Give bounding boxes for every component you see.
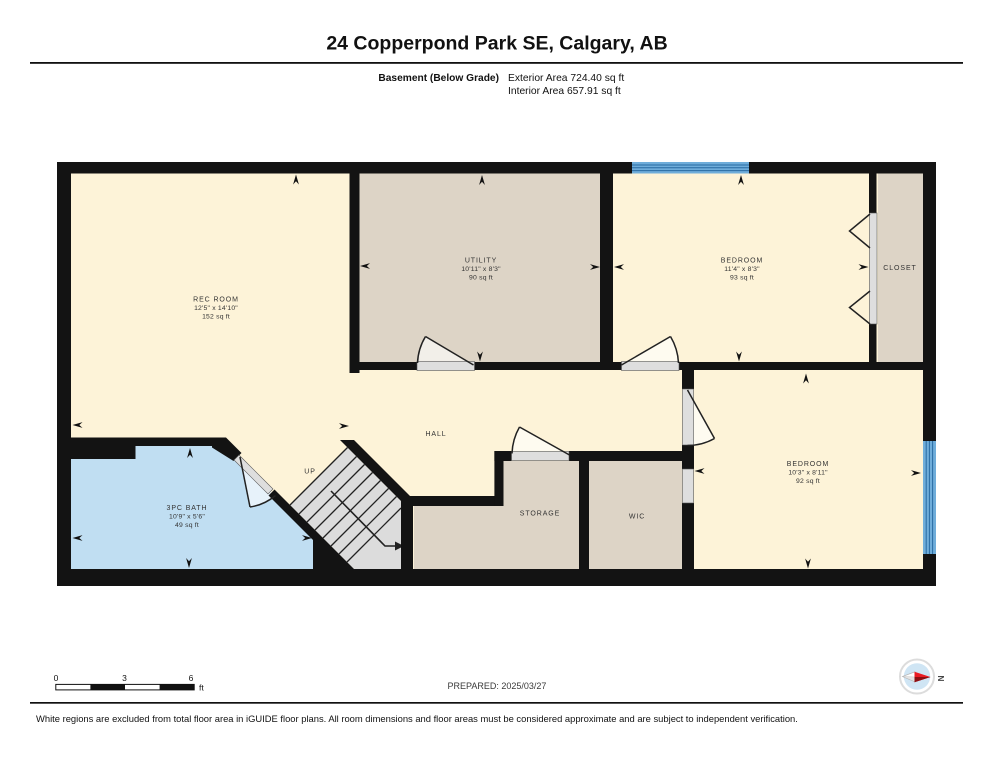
svg-text:Interior Area 657.91 sq ft: Interior Area 657.91 sq ft <box>508 86 621 97</box>
svg-text:UTILITY: UTILITY <box>465 258 497 265</box>
svg-text:10'11" x 8'3": 10'11" x 8'3" <box>461 266 501 273</box>
svg-text:PREPARED: 2025/03/27: PREPARED: 2025/03/27 <box>448 681 547 691</box>
svg-text:49 sq ft: 49 sq ft <box>175 522 199 529</box>
svg-text:ft: ft <box>199 683 204 693</box>
svg-text:HALL: HALL <box>425 431 446 438</box>
svg-text:92 sq ft: 92 sq ft <box>796 478 820 485</box>
svg-text:WIC: WIC <box>629 514 645 521</box>
svg-text:CLOSET: CLOSET <box>883 265 916 272</box>
svg-text:10'3" x 8'11": 10'3" x 8'11" <box>788 470 828 477</box>
svg-text:6: 6 <box>189 673 194 683</box>
svg-text:STORAGE: STORAGE <box>520 511 560 518</box>
svg-text:11'4" x 8'3": 11'4" x 8'3" <box>724 266 760 273</box>
svg-text:REC ROOM: REC ROOM <box>193 297 239 304</box>
svg-text:152 sq ft: 152 sq ft <box>202 314 230 321</box>
svg-text:N: N <box>936 676 945 682</box>
svg-text:White regions are excluded fro: White regions are excluded from total fl… <box>36 713 798 724</box>
svg-text:3PC BATH: 3PC BATH <box>167 505 208 512</box>
svg-text:3: 3 <box>122 673 127 683</box>
svg-text:12'5" x 14'10": 12'5" x 14'10" <box>194 305 238 312</box>
svg-text:BEDROOM: BEDROOM <box>787 461 829 468</box>
svg-text:Basement (Below Grade): Basement (Below Grade) <box>378 73 499 84</box>
svg-text:24 Copperpond Park SE, Calgary: 24 Copperpond Park SE, Calgary, AB <box>326 33 667 55</box>
svg-text:Exterior Area 724.40 sq ft: Exterior Area 724.40 sq ft <box>508 73 624 84</box>
svg-text:UP: UP <box>304 469 316 476</box>
svg-text:90 sq ft: 90 sq ft <box>469 275 493 282</box>
svg-text:BEDROOM: BEDROOM <box>721 258 763 265</box>
svg-text:0: 0 <box>54 673 59 683</box>
svg-text:10'9" x 5'6": 10'9" x 5'6" <box>169 514 205 521</box>
svg-text:93 sq ft: 93 sq ft <box>730 275 754 282</box>
